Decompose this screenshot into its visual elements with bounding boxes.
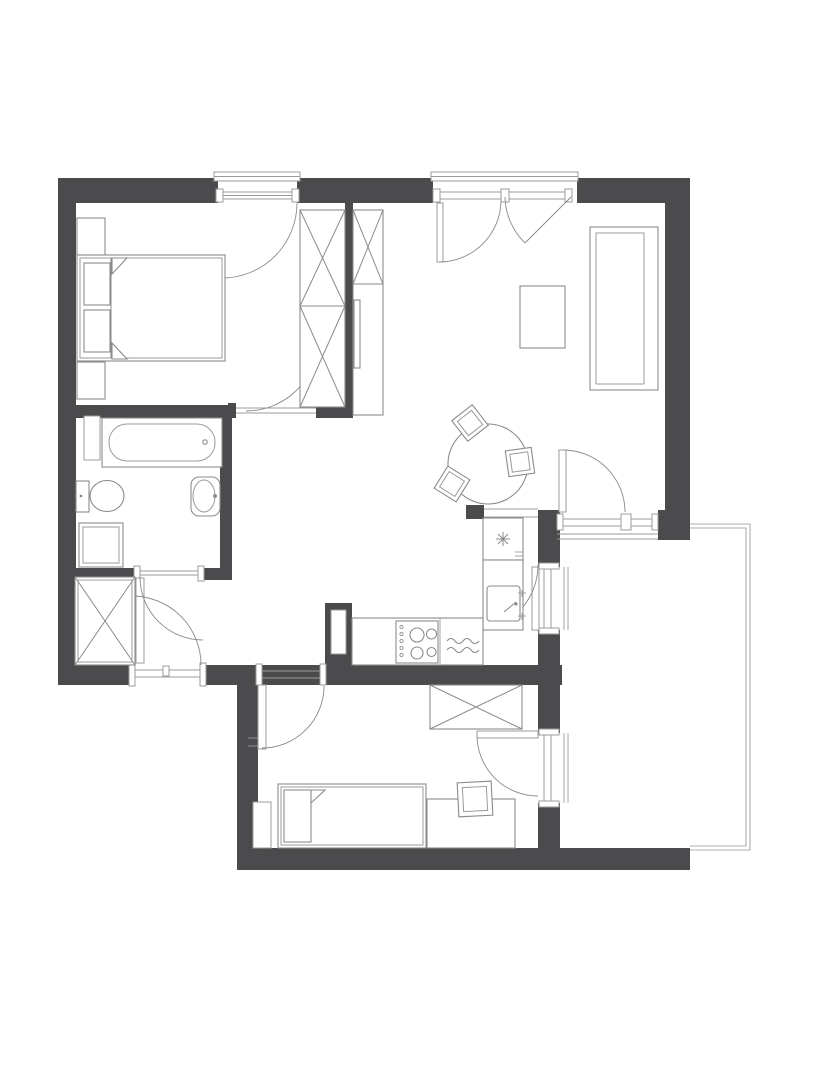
french-door-leaf-left [437,203,443,262]
wall-balcony-mid [538,630,560,733]
bedroom2-balcony-leaf [477,731,538,738]
coffee-table [520,286,565,348]
living-room-balcony-door [557,450,658,539]
wall-top-mid [297,178,433,203]
pillow [284,790,311,842]
snowflake-icon [496,532,510,546]
desk-chair [457,781,493,817]
wall-top-left [58,178,218,203]
dining-set [434,405,535,504]
wall-hall-bottom-left [76,665,132,685]
washing-machine [79,523,123,567]
bedroom-wardrobe [300,210,345,407]
bedroom-furniture [77,210,345,407]
pillow [84,310,110,352]
dining-chair [452,405,488,441]
nightstand-bottom [77,362,105,399]
hob-four-burner [396,621,438,663]
wall-left [58,178,76,685]
worktop [352,618,483,665]
dining-chair [505,447,534,476]
door-leaf [258,685,266,749]
floor-plan [0,0,818,1080]
floor-plan-page [0,0,818,1080]
living-room-window [431,172,578,262]
bedroom-window [214,172,300,278]
niche-bathroom [84,416,100,460]
hallway-wardrobe [75,577,135,665]
window-swing-arc [222,203,297,278]
french-door-arc-right [505,197,525,243]
sink-unit [483,560,526,630]
kitchen-window-leaf [532,567,539,630]
wall-bottom [237,848,690,870]
wall-kitchen-stub [466,505,484,519]
fridge-freezer [483,518,523,560]
wall-right [665,178,690,540]
bedroom2-wardrobe [430,685,522,729]
french-door-arc-left [440,201,501,262]
wall-doorpost-left [228,403,236,418]
toilet [76,481,124,513]
tv-panel [354,300,360,368]
wall-bathroom-bottom-right [203,568,232,580]
sofa [590,227,658,390]
niche-corridor [331,610,346,654]
kitchen-units [352,509,538,665]
living-room-furniture [353,210,658,504]
wall-hall-bottom-right [203,665,258,685]
washbasin [191,477,220,516]
wall-bedroom2-top [258,665,562,685]
french-door-leaf-right [525,197,571,243]
wall-right-stub [658,510,668,540]
bathtub [102,418,222,467]
door-arc [262,686,324,748]
balcony-door-arc [563,450,625,512]
wall-balcony-lower [538,803,560,848]
bathroom-door [124,566,204,663]
niche-bedroom2 [253,802,271,848]
wall-partition-bedroom-living [345,203,353,413]
balcony-door-leaf [559,450,566,512]
nightstand-top [77,218,105,255]
door-leaf [136,578,144,663]
pillow [84,263,110,305]
balcony-railing [690,524,750,850]
single-bed [278,784,426,848]
